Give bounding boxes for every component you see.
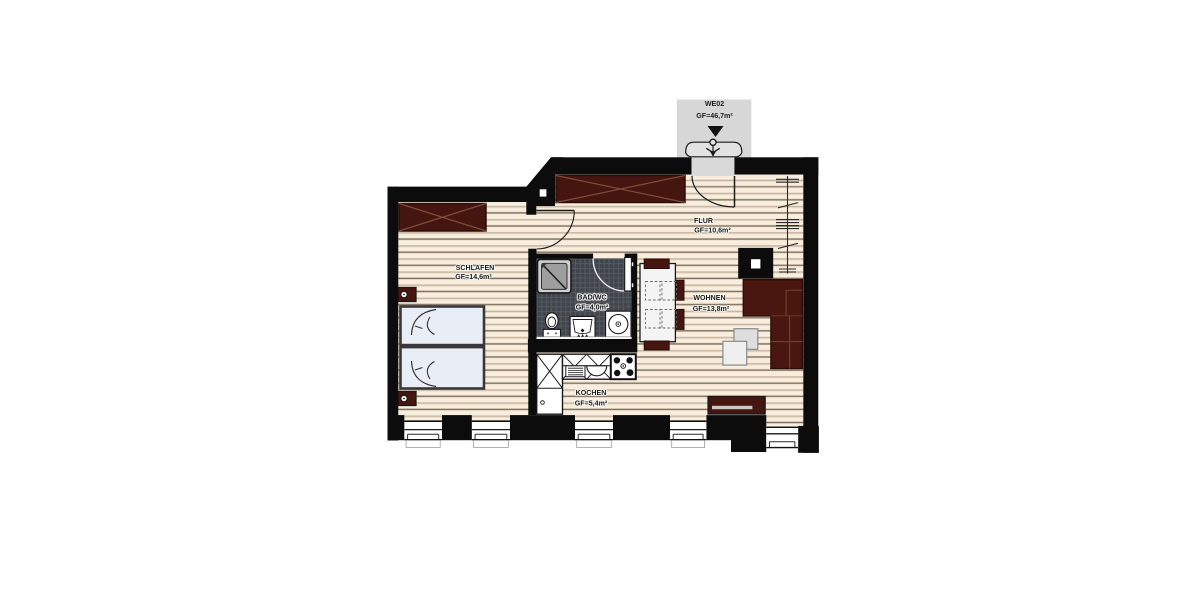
svg-text:SCHLAFEN: SCHLAFEN: [456, 264, 495, 272]
svg-text:GF=5,4m²: GF=5,4m²: [575, 399, 608, 407]
svg-text:GF=14,6m²: GF=14,6m²: [455, 273, 492, 281]
svg-text:BAD/WC: BAD/WC: [577, 294, 606, 302]
svg-text:FLUR: FLUR: [694, 217, 713, 225]
svg-text:WE02: WE02: [705, 100, 724, 108]
svg-text:WOHNEN: WOHNEN: [693, 294, 725, 302]
svg-text:GF=13,8m²: GF=13,8m²: [693, 305, 730, 313]
svg-text:GF=4,0m²: GF=4,0m²: [576, 304, 609, 312]
svg-text:KOCHEN: KOCHEN: [576, 389, 607, 397]
svg-text:GF=46,7m²: GF=46,7m²: [696, 112, 733, 120]
svg-text:GF=10,6m²: GF=10,6m²: [694, 226, 731, 234]
